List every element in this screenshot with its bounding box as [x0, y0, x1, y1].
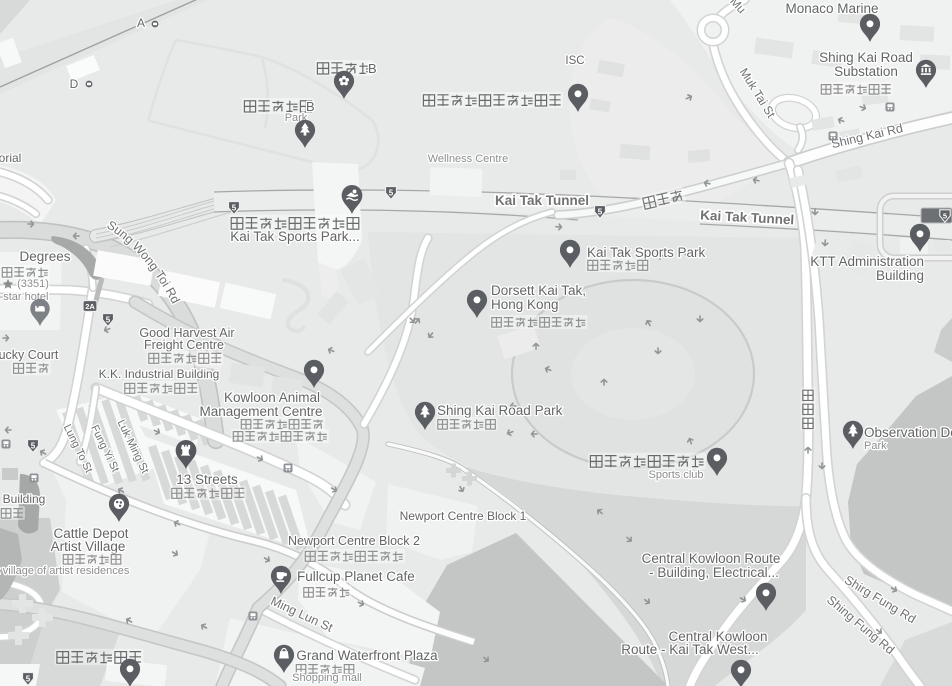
svg-text:B: B: [368, 61, 377, 76]
svg-text:Kowloon Animal: Kowloon Animal: [224, 390, 320, 405]
svg-text:- Building, Electrical...: - Building, Electrical...: [649, 565, 779, 580]
svg-text:5: 5: [106, 316, 111, 325]
svg-text:orial: orial: [0, 151, 21, 165]
svg-text:Newport Centre Block 1: Newport Centre Block 1: [400, 509, 527, 523]
svg-text:5: 5: [598, 208, 603, 217]
svg-text:Artist Village: Artist Village: [51, 539, 126, 554]
svg-text:Sports club: Sports club: [648, 469, 703, 481]
svg-text:(3351): (3351): [17, 278, 49, 290]
svg-text:5: 5: [232, 204, 237, 213]
svg-text:Monaco Marine: Monaco Marine: [785, 1, 878, 16]
svg-text:Fullcup Planet Cafe: Fullcup Planet Cafe: [297, 569, 415, 584]
svg-text:D: D: [70, 77, 79, 91]
svg-text:13 Streets: 13 Streets: [176, 472, 238, 487]
svg-text:Hong Kong: Hong Kong: [491, 297, 559, 312]
svg-text:Newport Centre Block 2: Newport Centre Block 2: [288, 534, 420, 548]
svg-text:KTT Administration: KTT Administration: [810, 254, 924, 269]
svg-text:Wellness Centre: Wellness Centre: [428, 153, 509, 165]
svg-text:5: 5: [26, 675, 31, 684]
svg-text:Freight Centre: Freight Centre: [144, 338, 224, 352]
svg-text:Kai Tak Tunnel: Kai Tak Tunnel: [495, 193, 589, 208]
svg-text:5: 5: [389, 189, 394, 198]
svg-text:Lucky Court: Lucky Court: [0, 348, 59, 362]
svg-text:Substation: Substation: [834, 64, 898, 79]
svg-text:Management Centre: Management Centre: [199, 404, 322, 419]
svg-text:Building: Building: [876, 268, 924, 283]
svg-text:t village of artist residences: t village of artist residences: [0, 565, 130, 577]
svg-text:Shopping mall: Shopping mall: [292, 672, 362, 684]
svg-text:Kai Tak Sports Park...: Kai Tak Sports Park...: [230, 229, 360, 244]
svg-text:l Building: l Building: [0, 492, 45, 506]
svg-text:Observation De: Observation De: [864, 425, 952, 440]
svg-text:K.K. Industrial Building: K.K. Industrial Building: [99, 367, 220, 381]
svg-text:Shing Kai Road: Shing Kai Road: [819, 50, 913, 65]
svg-text:Route - Kai Tak West...: Route - Kai Tak West...: [621, 642, 759, 657]
svg-text:Degrees: Degrees: [19, 249, 70, 264]
svg-text:Grand Waterfront Plaza: Grand Waterfront Plaza: [296, 648, 438, 663]
svg-text:Dorsett Kai Tak,: Dorsett Kai Tak,: [491, 283, 586, 298]
svg-text:Park: Park: [864, 440, 887, 452]
svg-text:A: A: [137, 16, 145, 30]
svg-text:Shing Kai Road Park: Shing Kai Road Park: [437, 403, 563, 418]
svg-text:Central Kowloon Route: Central Kowloon Route: [642, 551, 781, 566]
svg-text:ISC: ISC: [565, 55, 584, 67]
svg-text:5: 5: [31, 442, 36, 451]
svg-text:2A: 2A: [85, 302, 95, 311]
